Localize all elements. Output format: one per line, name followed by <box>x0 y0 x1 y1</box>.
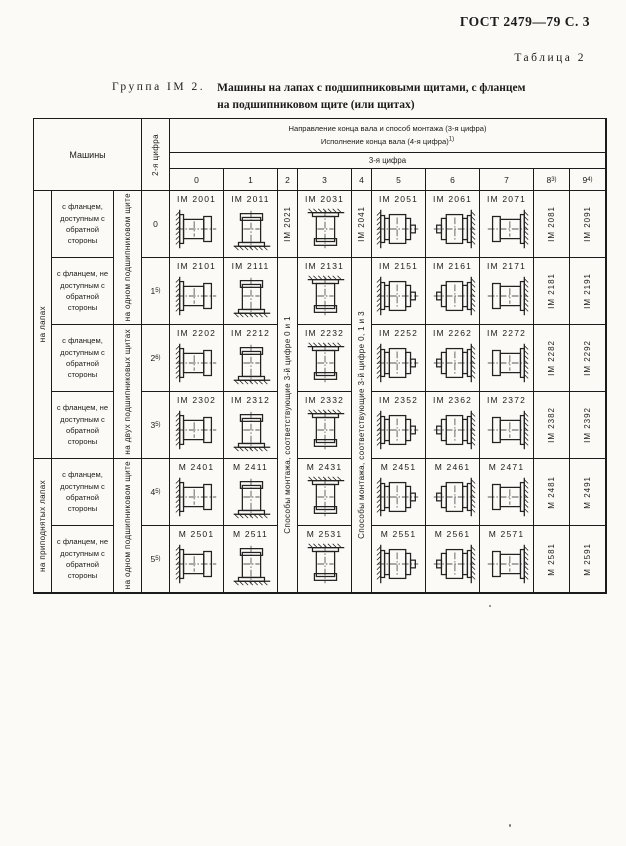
im-code-cell: IM 2061 <box>426 191 480 258</box>
flange-wall-left-double-drawing-icon <box>374 405 424 454</box>
flange-description: с фланцем, доступным с обратной стороны <box>52 325 114 392</box>
im-code-cell: М 2511 <box>224 526 278 593</box>
flange-wall-left-drawing-icon <box>172 204 222 253</box>
im-code-cell: IM 2071 <box>480 191 534 258</box>
im-code-label: IM 2181 <box>547 273 556 309</box>
im-code-cell: М 2401 <box>170 459 224 526</box>
scan-speck <box>489 605 491 607</box>
im-code-cell: М 2461 <box>426 459 480 526</box>
flange-floor-drawing-icon <box>226 338 276 387</box>
im-code-label: IM 2392 <box>583 407 592 443</box>
im-code-cell-rotated: М 2491 <box>570 459 606 526</box>
im-code-label: IM 2001 <box>177 194 216 204</box>
im-code-label: IM 2282 <box>547 340 556 376</box>
im-code-cell-rotated: IM 2091 <box>570 191 606 258</box>
im-code-label: М 2461 <box>435 462 471 472</box>
machine-group-label-0: на лапах <box>34 191 52 459</box>
im-code-cell: IM 2161 <box>426 258 480 325</box>
im-code-cell: IM 2332 <box>298 392 352 459</box>
im-code-label: IM 2051 <box>379 194 418 204</box>
im-code-cell-rotated: IM 2382 <box>534 392 570 459</box>
im-code-cell: IM 2051 <box>372 191 426 258</box>
flange-wall-right-double-drawing-icon <box>428 472 478 521</box>
mounting-note-column-4: Способы монтажа, соответствующие 3-й циф… <box>352 258 372 593</box>
im-code-label: IM 2252 <box>379 328 418 338</box>
im-code-label: IM 2292 <box>583 340 592 376</box>
third-digit-header: 3-я цифра <box>170 153 606 169</box>
im-code-label: IM 2272 <box>487 328 526 338</box>
im-code-cell-rotated: IM 2041 <box>352 191 372 258</box>
im-code-label: IM 2021 <box>283 206 292 242</box>
im-code-label: IM 2091 <box>583 206 592 242</box>
flange-wall-right-double-drawing-icon <box>428 204 478 253</box>
shaft-direction-header: Направление конца вала и способ монтажа … <box>170 119 606 153</box>
im-code-label: IM 2202 <box>177 328 216 338</box>
flange-floor-drawing-icon <box>226 204 276 253</box>
im-code-cell: М 2501 <box>170 526 224 593</box>
im-code-label: IM 2312 <box>231 395 270 405</box>
im-code-label: IM 2352 <box>379 395 418 405</box>
im-code-label: М 2471 <box>489 462 525 472</box>
im-code-label: IM 2332 <box>305 395 344 405</box>
im-code-label: М 2411 <box>233 462 268 472</box>
gost-standard-header: ГОСТ 2479—79 С. 3 <box>460 14 590 30</box>
im-code-label: М 2501 <box>179 529 215 539</box>
flange-wall-left-double-drawing-icon <box>374 271 424 320</box>
im-code-label: IM 2151 <box>379 261 418 271</box>
im-code-label: М 2571 <box>489 529 525 539</box>
im-code-cell-rotated: IM 2181 <box>534 258 570 325</box>
flange-wall-left-drawing-icon <box>172 472 222 521</box>
scan-speck <box>509 824 511 827</box>
im-code-cell: IM 2131 <box>298 258 352 325</box>
group-title-text: Машины на лапах с подшипниковыми щитами,… <box>217 80 525 113</box>
im-code-cell: IM 2362 <box>426 392 480 459</box>
im-code-cell: IM 2212 <box>224 325 278 392</box>
im-code-cell-rotated: IM 2282 <box>534 325 570 392</box>
im-code-cell: IM 2151 <box>372 258 426 325</box>
flange-wall-right-double-drawing-icon <box>428 539 478 588</box>
im-code-cell: IM 2011 <box>224 191 278 258</box>
im-code-cell: М 2561 <box>426 526 480 593</box>
digit-column-header-5: 5 <box>372 169 426 191</box>
flange-ceiling-drawing-icon <box>300 338 350 387</box>
second-digit-value: 26) <box>142 325 170 392</box>
machines-column-header: Машины <box>34 119 142 191</box>
im-code-cell: IM 2372 <box>480 392 534 459</box>
flange-ceiling-drawing-icon <box>300 472 350 521</box>
im-code-label: М 2561 <box>435 529 471 539</box>
im-code-cell: IM 2262 <box>426 325 480 392</box>
im-code-label: IM 2071 <box>487 194 526 204</box>
digit-column-header-3: 3 <box>298 169 352 191</box>
second-digit-value: 55) <box>142 526 170 593</box>
flange-floor-drawing-icon <box>226 472 276 521</box>
im-code-cell: М 2451 <box>372 459 426 526</box>
bearing-shield-group-label-0: на одном подшипниковом щите <box>114 191 142 325</box>
im-code-cell: IM 2272 <box>480 325 534 392</box>
im-code-cell: М 2471 <box>480 459 534 526</box>
flange-description: с фланцем, не доступным с обратной сторо… <box>52 258 114 325</box>
flange-wall-right-double-drawing-icon <box>428 271 478 320</box>
im-code-cell: М 2411 <box>224 459 278 526</box>
flange-wall-right-drawing-icon <box>482 204 532 253</box>
im-code-label: IM 2111 <box>232 261 270 271</box>
machine-group-label-1: на приподнятых лапах <box>34 459 52 593</box>
flange-ceiling-drawing-icon <box>300 271 350 320</box>
im-code-cell-rotated: М 2581 <box>534 526 570 593</box>
im-code-label: IM 2011 <box>231 194 269 204</box>
second-digit-value: 45) <box>142 459 170 526</box>
im-code-cell: IM 2312 <box>224 392 278 459</box>
flange-wall-left-drawing-icon <box>172 338 222 387</box>
im-code-label: IM 2191 <box>583 273 592 309</box>
im-code-label: IM 2101 <box>177 261 216 271</box>
im-code-label: М 2451 <box>381 462 417 472</box>
im-code-cell: IM 2202 <box>170 325 224 392</box>
second-digit-value: 15) <box>142 258 170 325</box>
im-code-cell: IM 2352 <box>372 392 426 459</box>
im-code-cell-rotated: IM 2191 <box>570 258 606 325</box>
im-code-label: М 2481 <box>547 476 556 509</box>
digit-column-header-0: 0 <box>170 169 224 191</box>
flange-wall-left-drawing-icon <box>172 271 222 320</box>
digit-column-header-7: 7 <box>480 169 534 191</box>
document-page: ГОСТ 2479—79 С. 3 Таблица 2 Группа IM 2.… <box>0 0 626 846</box>
im-code-label: М 2431 <box>307 462 343 472</box>
im-code-cell-rotated: IM 2021 <box>278 191 298 258</box>
flange-wall-right-drawing-icon <box>482 405 532 454</box>
flange-floor-drawing-icon <box>226 271 276 320</box>
flange-wall-right-drawing-icon <box>482 338 532 387</box>
im-code-label: IM 2031 <box>305 194 344 204</box>
group-title: Группа IM 2. Машины на лапах с подшипник… <box>112 80 532 113</box>
im-code-cell-rotated: IM 2392 <box>570 392 606 459</box>
im-code-label: М 2401 <box>179 462 215 472</box>
im-code-label: IM 2362 <box>433 395 472 405</box>
bearing-shield-group-label-2: на одном подшипниковом щите <box>114 459 142 593</box>
im-code-label: IM 2161 <box>433 261 472 271</box>
im-code-label: М 2491 <box>583 476 592 509</box>
flange-wall-left-double-drawing-icon <box>374 539 424 588</box>
digit-column-header-4: 4 <box>352 169 372 191</box>
im-code-cell: IM 2232 <box>298 325 352 392</box>
digit-column-header-8: 83) <box>534 169 570 191</box>
flange-wall-left-drawing-icon <box>172 539 222 588</box>
flange-wall-right-double-drawing-icon <box>428 338 478 387</box>
group-title-line2: на подшипниковом щите (или щитах) <box>217 99 414 111</box>
flange-wall-left-drawing-icon <box>172 405 222 454</box>
im-code-cell: IM 2101 <box>170 258 224 325</box>
im-code-cell: IM 2111 <box>224 258 278 325</box>
im-code-label: М 2591 <box>583 543 592 576</box>
flange-wall-right-double-drawing-icon <box>428 405 478 454</box>
flange-ceiling-drawing-icon <box>300 405 350 454</box>
second-digit-value: 35) <box>142 392 170 459</box>
flange-floor-drawing-icon <box>226 405 276 454</box>
im-code-label: IM 2041 <box>357 206 366 242</box>
im-code-cell: IM 2302 <box>170 392 224 459</box>
flange-wall-right-drawing-icon <box>482 539 532 588</box>
im-code-label: IM 2061 <box>433 194 472 204</box>
im-code-cell: IM 2031 <box>298 191 352 258</box>
im-code-cell-rotated: М 2481 <box>534 459 570 526</box>
im-code-cell: IM 2001 <box>170 191 224 258</box>
im-code-cell: М 2551 <box>372 526 426 593</box>
flange-wall-left-double-drawing-icon <box>374 472 424 521</box>
flange-wall-left-double-drawing-icon <box>374 204 424 253</box>
flange-ceiling-drawing-icon <box>300 204 350 253</box>
im-code-label: М 2511 <box>233 529 268 539</box>
im-code-cell: IM 2171 <box>480 258 534 325</box>
flange-wall-right-drawing-icon <box>482 271 532 320</box>
im-code-cell: IM 2252 <box>372 325 426 392</box>
digit-column-header-9: 94) <box>570 169 606 191</box>
table-number-label: Таблица 2 <box>514 52 586 64</box>
im-code-label: IM 2131 <box>305 261 344 271</box>
group-label: Группа IM 2. <box>112 80 205 113</box>
im-code-label: IM 2232 <box>305 328 344 338</box>
im-code-label: М 2551 <box>381 529 417 539</box>
second-digit-column-header: 2-я цифра <box>142 119 170 191</box>
mounting-note-column-2: Способы монтажа, соответствующие 3-й циф… <box>278 258 298 593</box>
im-code-label: IM 2382 <box>547 407 556 443</box>
flange-floor-drawing-icon <box>226 539 276 588</box>
digit-column-header-6: 6 <box>426 169 480 191</box>
digit-column-header-2: 2 <box>278 169 298 191</box>
group-title-line1: Машины на лапах с подшипниковыми щитами,… <box>217 82 525 94</box>
flange-wall-left-double-drawing-icon <box>374 338 424 387</box>
im-code-cell-rotated: IM 2292 <box>570 325 606 392</box>
im-code-label: IM 2262 <box>433 328 472 338</box>
flange-description: с фланцем, не доступным с обратной сторо… <box>52 392 114 459</box>
im-code-cell: М 2571 <box>480 526 534 593</box>
bearing-shield-group-label-1: на двух подшипниковых щитах <box>114 325 142 459</box>
im-code-cell-rotated: М 2591 <box>570 526 606 593</box>
im-code-label: IM 2372 <box>487 395 526 405</box>
flange-wall-right-drawing-icon <box>482 472 532 521</box>
flange-ceiling-drawing-icon <box>300 539 350 588</box>
im-code-cell-rotated: IM 2081 <box>534 191 570 258</box>
im-code-label: М 2581 <box>547 543 556 576</box>
im-code-label: IM 2212 <box>231 328 270 338</box>
flange-description: с фланцем, доступным с обратной стороны <box>52 191 114 258</box>
im-code-label: IM 2081 <box>547 206 556 242</box>
im-code-cell: М 2531 <box>298 526 352 593</box>
mounting-arrangements-table: Машины2-я цифраНаправление конца вала и … <box>33 118 607 594</box>
im-code-label: М 2531 <box>307 529 343 539</box>
im-code-label: IM 2302 <box>177 395 216 405</box>
im-code-cell: М 2431 <box>298 459 352 526</box>
flange-description: с фланцем, не доступным с обратной сторо… <box>52 526 114 593</box>
im-code-label: IM 2171 <box>487 261 526 271</box>
second-digit-value: 0 <box>142 191 170 258</box>
flange-description: с фланцем, доступным с обратной стороны <box>52 459 114 526</box>
digit-column-header-1: 1 <box>224 169 278 191</box>
